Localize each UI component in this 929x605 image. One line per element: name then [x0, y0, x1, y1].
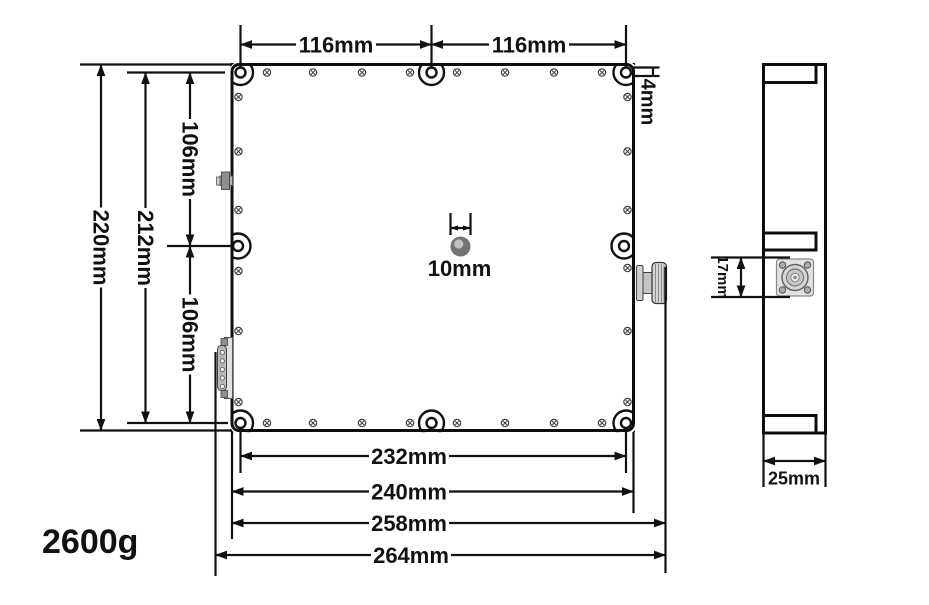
dim-264: 264mm — [371, 543, 451, 568]
dim-232-label: 232mm — [371, 444, 447, 469]
dim-10-label: 10mm — [428, 256, 492, 281]
dim-220-label: 220mm — [89, 210, 114, 286]
dim-4: 4mm — [637, 79, 659, 126]
dim-25-label: 25mm — [768, 469, 820, 489]
dim-106-lower: 106mm — [178, 295, 203, 375]
dim-220: 220mm — [89, 208, 114, 288]
dim-106-upper-label: 106mm — [178, 121, 203, 197]
dim-116-right: 116mm — [489, 33, 569, 58]
mechanical-drawing: 116mm 116mm 4mm 220mm 212mm 106mm 106mm … — [0, 0, 929, 605]
dim-212: 212mm — [133, 208, 158, 288]
db9-connector — [218, 338, 233, 399]
dim-258-label: 258mm — [371, 511, 447, 536]
dim-116-left-label: 116mm — [299, 33, 374, 58]
weight-label: 2600g — [42, 523, 138, 561]
dim-106-lower-label: 106mm — [178, 297, 203, 373]
dim-264-label: 264mm — [373, 543, 449, 568]
dim-232: 232mm — [369, 444, 449, 469]
dim-4-label: 4mm — [637, 79, 659, 126]
n-connector-front — [777, 259, 814, 296]
dim-240-label: 240mm — [371, 480, 447, 505]
dim-240: 240mm — [369, 480, 449, 505]
dim-106-upper: 106mm — [178, 119, 203, 199]
background — [0, 0, 929, 605]
dim-116-right-label: 116mm — [492, 33, 567, 58]
drawing-canvas: 116mm 116mm 4mm 220mm 212mm 106mm 106mm … — [0, 0, 929, 605]
dim-258: 258mm — [369, 511, 449, 536]
dim-212-label: 212mm — [133, 210, 158, 286]
n-connector-side — [637, 263, 667, 304]
dim-17-label: 17mm — [714, 255, 731, 298]
center-hole — [451, 237, 471, 257]
dim-116-left: 116mm — [296, 33, 376, 58]
